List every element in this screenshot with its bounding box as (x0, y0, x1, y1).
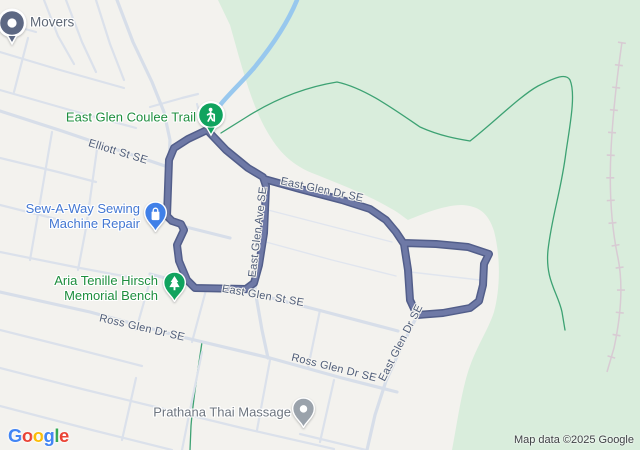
poi-label-memorial-bench[interactable]: Aria Tenille Hirsch Memorial Bench (54, 273, 158, 303)
tree-icon (162, 271, 187, 302)
poi-label-sew-a-way[interactable]: Sew-A-Way Sewing Machine Repair (26, 201, 140, 231)
google-logo[interactable]: Google (8, 425, 69, 447)
poi-label-movers[interactable]: Movers (30, 15, 74, 30)
park-area (218, 0, 640, 450)
map-data-copyright: Map data ©2025 Google (514, 434, 634, 446)
poi-label-east-glen-coulee-trail[interactable]: East Glen Coulee Trail (66, 110, 196, 125)
tree-pin[interactable] (162, 271, 187, 307)
hiker-icon (194, 98, 228, 140)
trail-pin[interactable] (194, 98, 228, 145)
generic-place-icon (291, 397, 316, 428)
shopping-bag-icon (143, 201, 168, 232)
movers-dot-icon (0, 6, 29, 50)
poi-label-prathana-thai-massage[interactable]: Prathana Thai Massage (153, 405, 291, 420)
generic-pin[interactable] (291, 397, 316, 433)
map-canvas[interactable]: Elliott St SE East Glen Dr SE East Glen … (0, 0, 640, 450)
shopping-pin[interactable] (143, 201, 168, 237)
movers-pin[interactable] (0, 6, 29, 55)
